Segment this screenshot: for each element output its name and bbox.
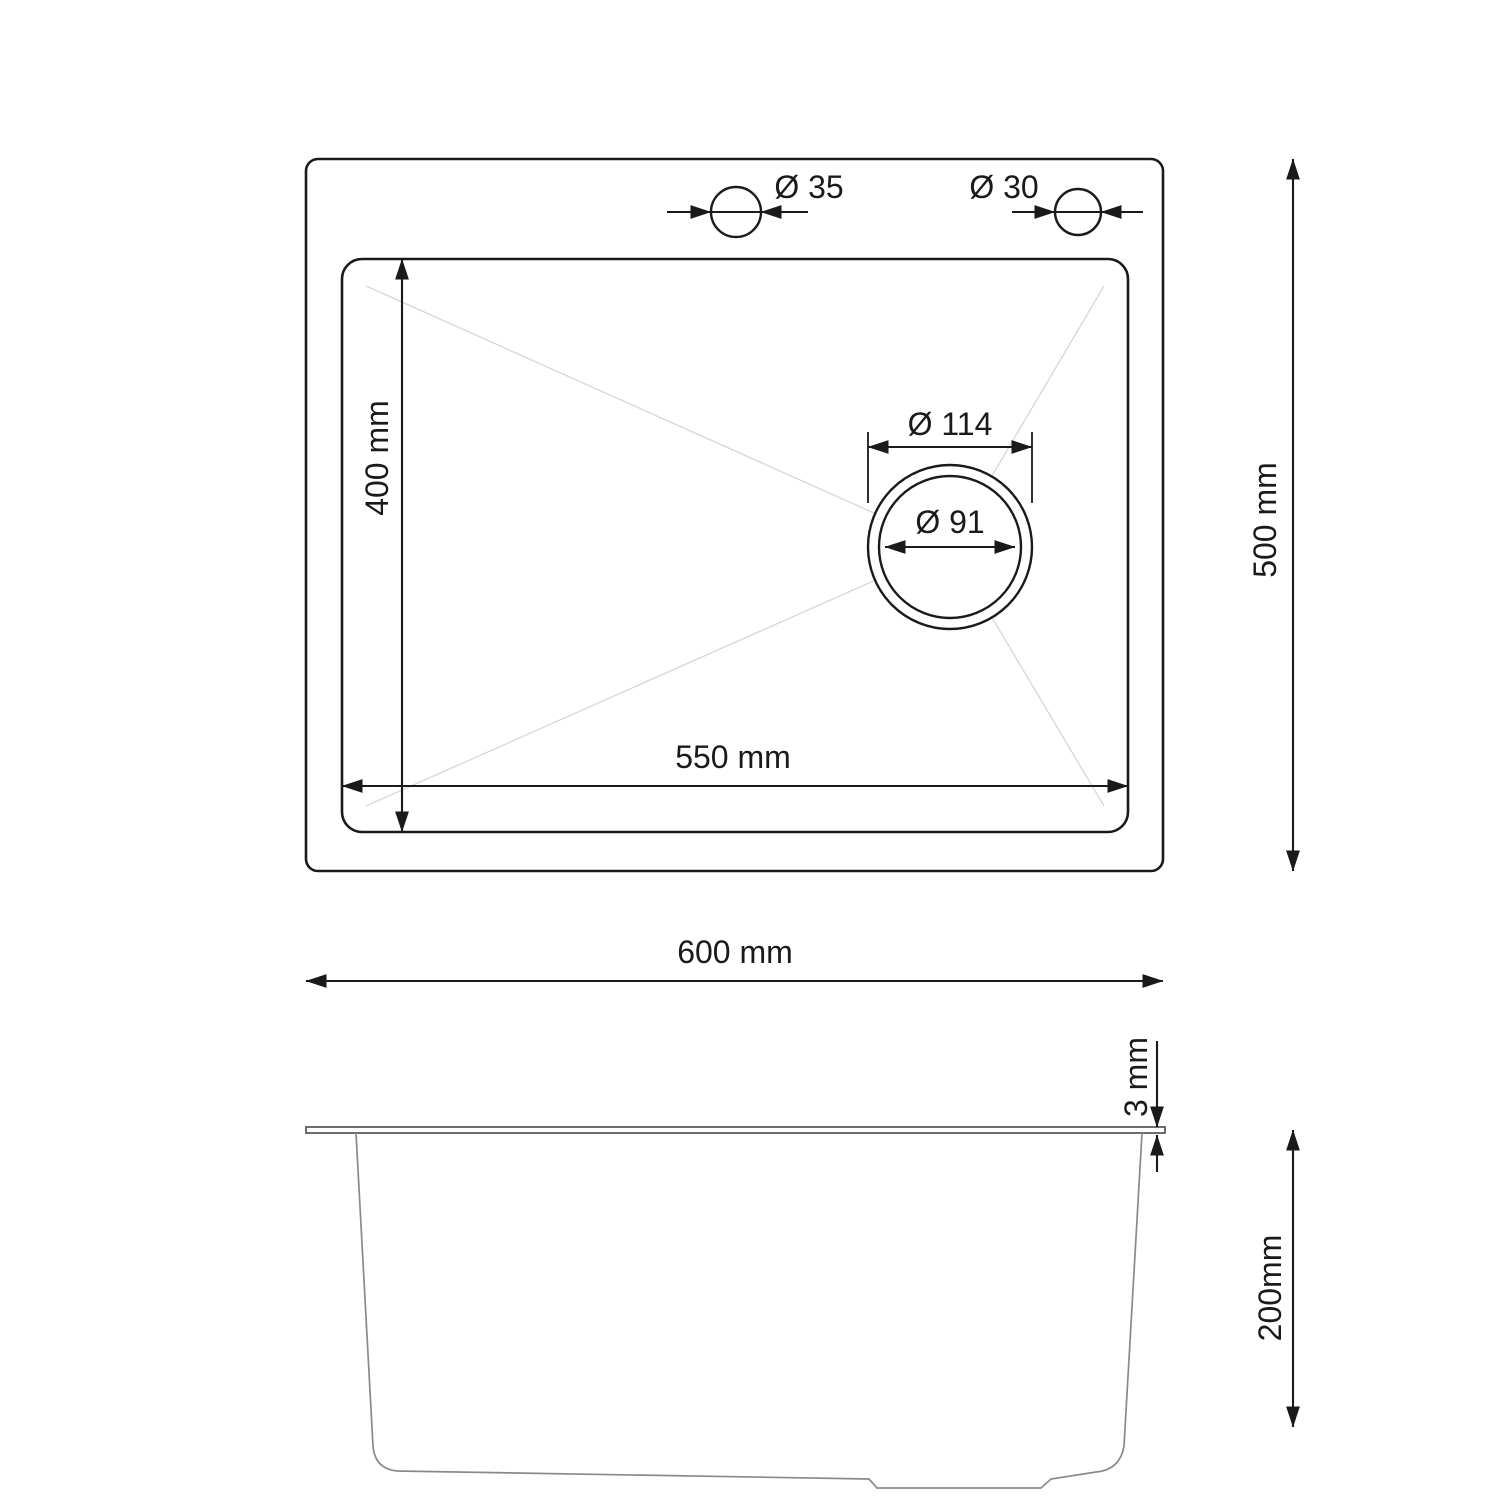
overall-depth-dimension-label: 500 mm <box>1247 462 1283 578</box>
bowl-height-label: 200mm <box>1252 1235 1288 1342</box>
sink-side-view: 3 mm 200mm <box>306 1037 1293 1488</box>
basin-slope-line-bottom-left <box>366 547 950 806</box>
bowl-height-dimension: 200mm <box>1252 1130 1293 1427</box>
sink-technical-drawing: Ø 114 Ø 91 Ø 35 Ø 30 400 mm 5 <box>0 0 1500 1500</box>
rim-thickness-label: 3 mm <box>1118 1037 1154 1117</box>
faucet-hole-left: Ø 35 <box>667 169 844 237</box>
overall-width-dimension: 600 mm <box>306 934 1163 981</box>
overall-depth-dimension: 500 mm <box>1247 159 1293 871</box>
faucet-hole-right: Ø 30 <box>969 169 1143 235</box>
bowl-depth-dimension: 400 mm <box>359 259 402 832</box>
faucet-hole-right-label: Ø 30 <box>969 169 1038 205</box>
bowl-depth-dimension-label: 400 mm <box>359 400 395 516</box>
drain: Ø 114 Ø 91 <box>868 406 1032 629</box>
bowl-width-dimension-label: 550 mm <box>675 739 791 775</box>
drain-outer-dimension-label: Ø 114 <box>908 406 993 442</box>
bowl-width-dimension: 550 mm <box>342 739 1128 786</box>
overall-width-dimension-label: 600 mm <box>677 934 793 970</box>
basin-slope-line-top-left <box>366 286 950 547</box>
bowl-profile <box>356 1133 1142 1488</box>
rim-profile <box>306 1127 1165 1133</box>
rim-thickness-dimension: 3 mm <box>1118 1037 1157 1172</box>
sink-top-view: Ø 114 Ø 91 Ø 35 Ø 30 400 mm 5 <box>306 159 1293 981</box>
faucet-hole-left-label: Ø 35 <box>774 169 843 205</box>
drain-inner-dimension-label: Ø 91 <box>915 504 984 540</box>
